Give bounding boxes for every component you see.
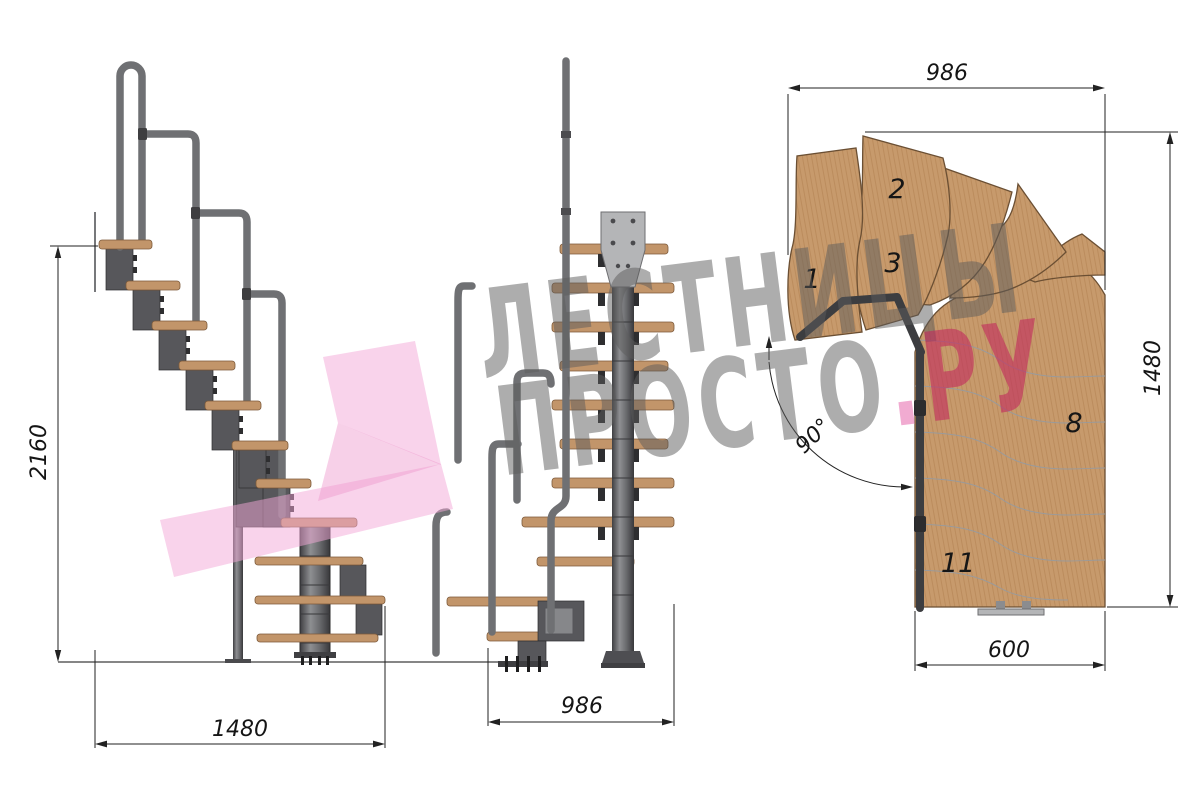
plan-view: 986 1480 600 90° 1 2 3 8 11	[766, 61, 1178, 671]
rail-clamp	[138, 128, 147, 140]
angle-annotation: 90°	[766, 336, 913, 490]
pole-flare	[602, 651, 644, 663]
dimension-height: 2160	[27, 246, 98, 662]
dim-plan-right-label: 1480	[1141, 340, 1166, 396]
tread	[256, 479, 311, 488]
module	[340, 565, 366, 597]
rail-clamp	[191, 207, 200, 219]
handrail	[517, 373, 551, 500]
pole	[612, 283, 634, 651]
step-number: 2	[888, 174, 905, 205]
handrail-loop	[120, 65, 142, 247]
base-foot	[996, 601, 1005, 609]
plan-base-plate	[978, 609, 1044, 615]
dim-plan-top-label: 986	[926, 61, 968, 86]
step-number: 8	[1065, 408, 1082, 439]
module	[518, 641, 546, 663]
rail-coupler	[914, 516, 926, 532]
technical-drawing: 2160 1480	[0, 0, 1200, 790]
staircase-drawing-canvas: 2160 1480	[0, 0, 1200, 790]
treads	[447, 244, 674, 641]
tread	[255, 596, 385, 604]
mounting-plate	[601, 212, 645, 287]
dimension-plan-bottom: 600	[915, 611, 1105, 671]
rail-clamp	[242, 288, 251, 300]
rail-coupler	[914, 400, 926, 416]
tread	[179, 361, 235, 370]
handrail	[436, 512, 447, 653]
front-elevation-view: 986	[436, 61, 674, 726]
post-joint	[561, 208, 571, 215]
tread	[232, 441, 288, 450]
post-joint	[561, 131, 571, 138]
step-number: 3	[884, 248, 901, 279]
base-foot	[1022, 601, 1031, 609]
handrails	[436, 61, 571, 653]
step-number: 11	[941, 548, 975, 579]
post-base-plate	[225, 659, 251, 663]
handrail	[458, 286, 472, 460]
dim-length-label: 1480	[212, 717, 268, 742]
tread	[205, 401, 261, 410]
side-elevation-view: 2160 1480	[27, 65, 385, 748]
tread	[522, 517, 674, 527]
tread	[152, 321, 207, 330]
pole-base-plate	[601, 663, 645, 668]
tread	[99, 240, 152, 249]
column-flange	[294, 652, 336, 658]
angle-label: 90°	[791, 414, 836, 459]
tread	[255, 557, 363, 565]
step-number: 1	[803, 264, 820, 295]
dim-plan-bottom-label: 600	[988, 638, 1030, 663]
dim-height-label: 2160	[27, 424, 52, 480]
plan-handrail	[800, 297, 926, 608]
tread	[257, 634, 378, 642]
dim-width-label: 986	[561, 694, 603, 719]
module	[356, 604, 382, 635]
tread	[126, 281, 180, 290]
handrail-post	[551, 61, 566, 630]
tread	[447, 597, 552, 606]
